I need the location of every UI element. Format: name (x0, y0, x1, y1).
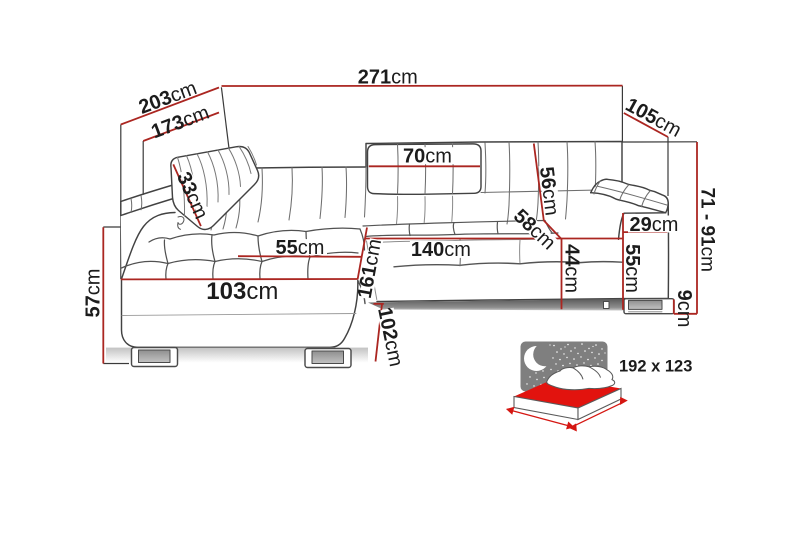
svg-text:140cm: 140cm (411, 239, 471, 261)
svg-text:9cm: 9cm (673, 290, 695, 328)
svg-text:71 - 91cm: 71 - 91cm (697, 187, 718, 271)
svg-text:55cm: 55cm (276, 237, 325, 259)
svg-text:57cm: 57cm (83, 269, 105, 318)
svg-text:29cm: 29cm (630, 214, 679, 236)
svg-text:103cm: 103cm (206, 278, 278, 305)
svg-text:70cm: 70cm (403, 146, 452, 168)
svg-text:44cm: 44cm (561, 244, 583, 293)
svg-text:271cm: 271cm (358, 66, 418, 88)
svg-text:55cm: 55cm (621, 244, 643, 293)
svg-text:192 x 123: 192 x 123 (619, 358, 692, 376)
